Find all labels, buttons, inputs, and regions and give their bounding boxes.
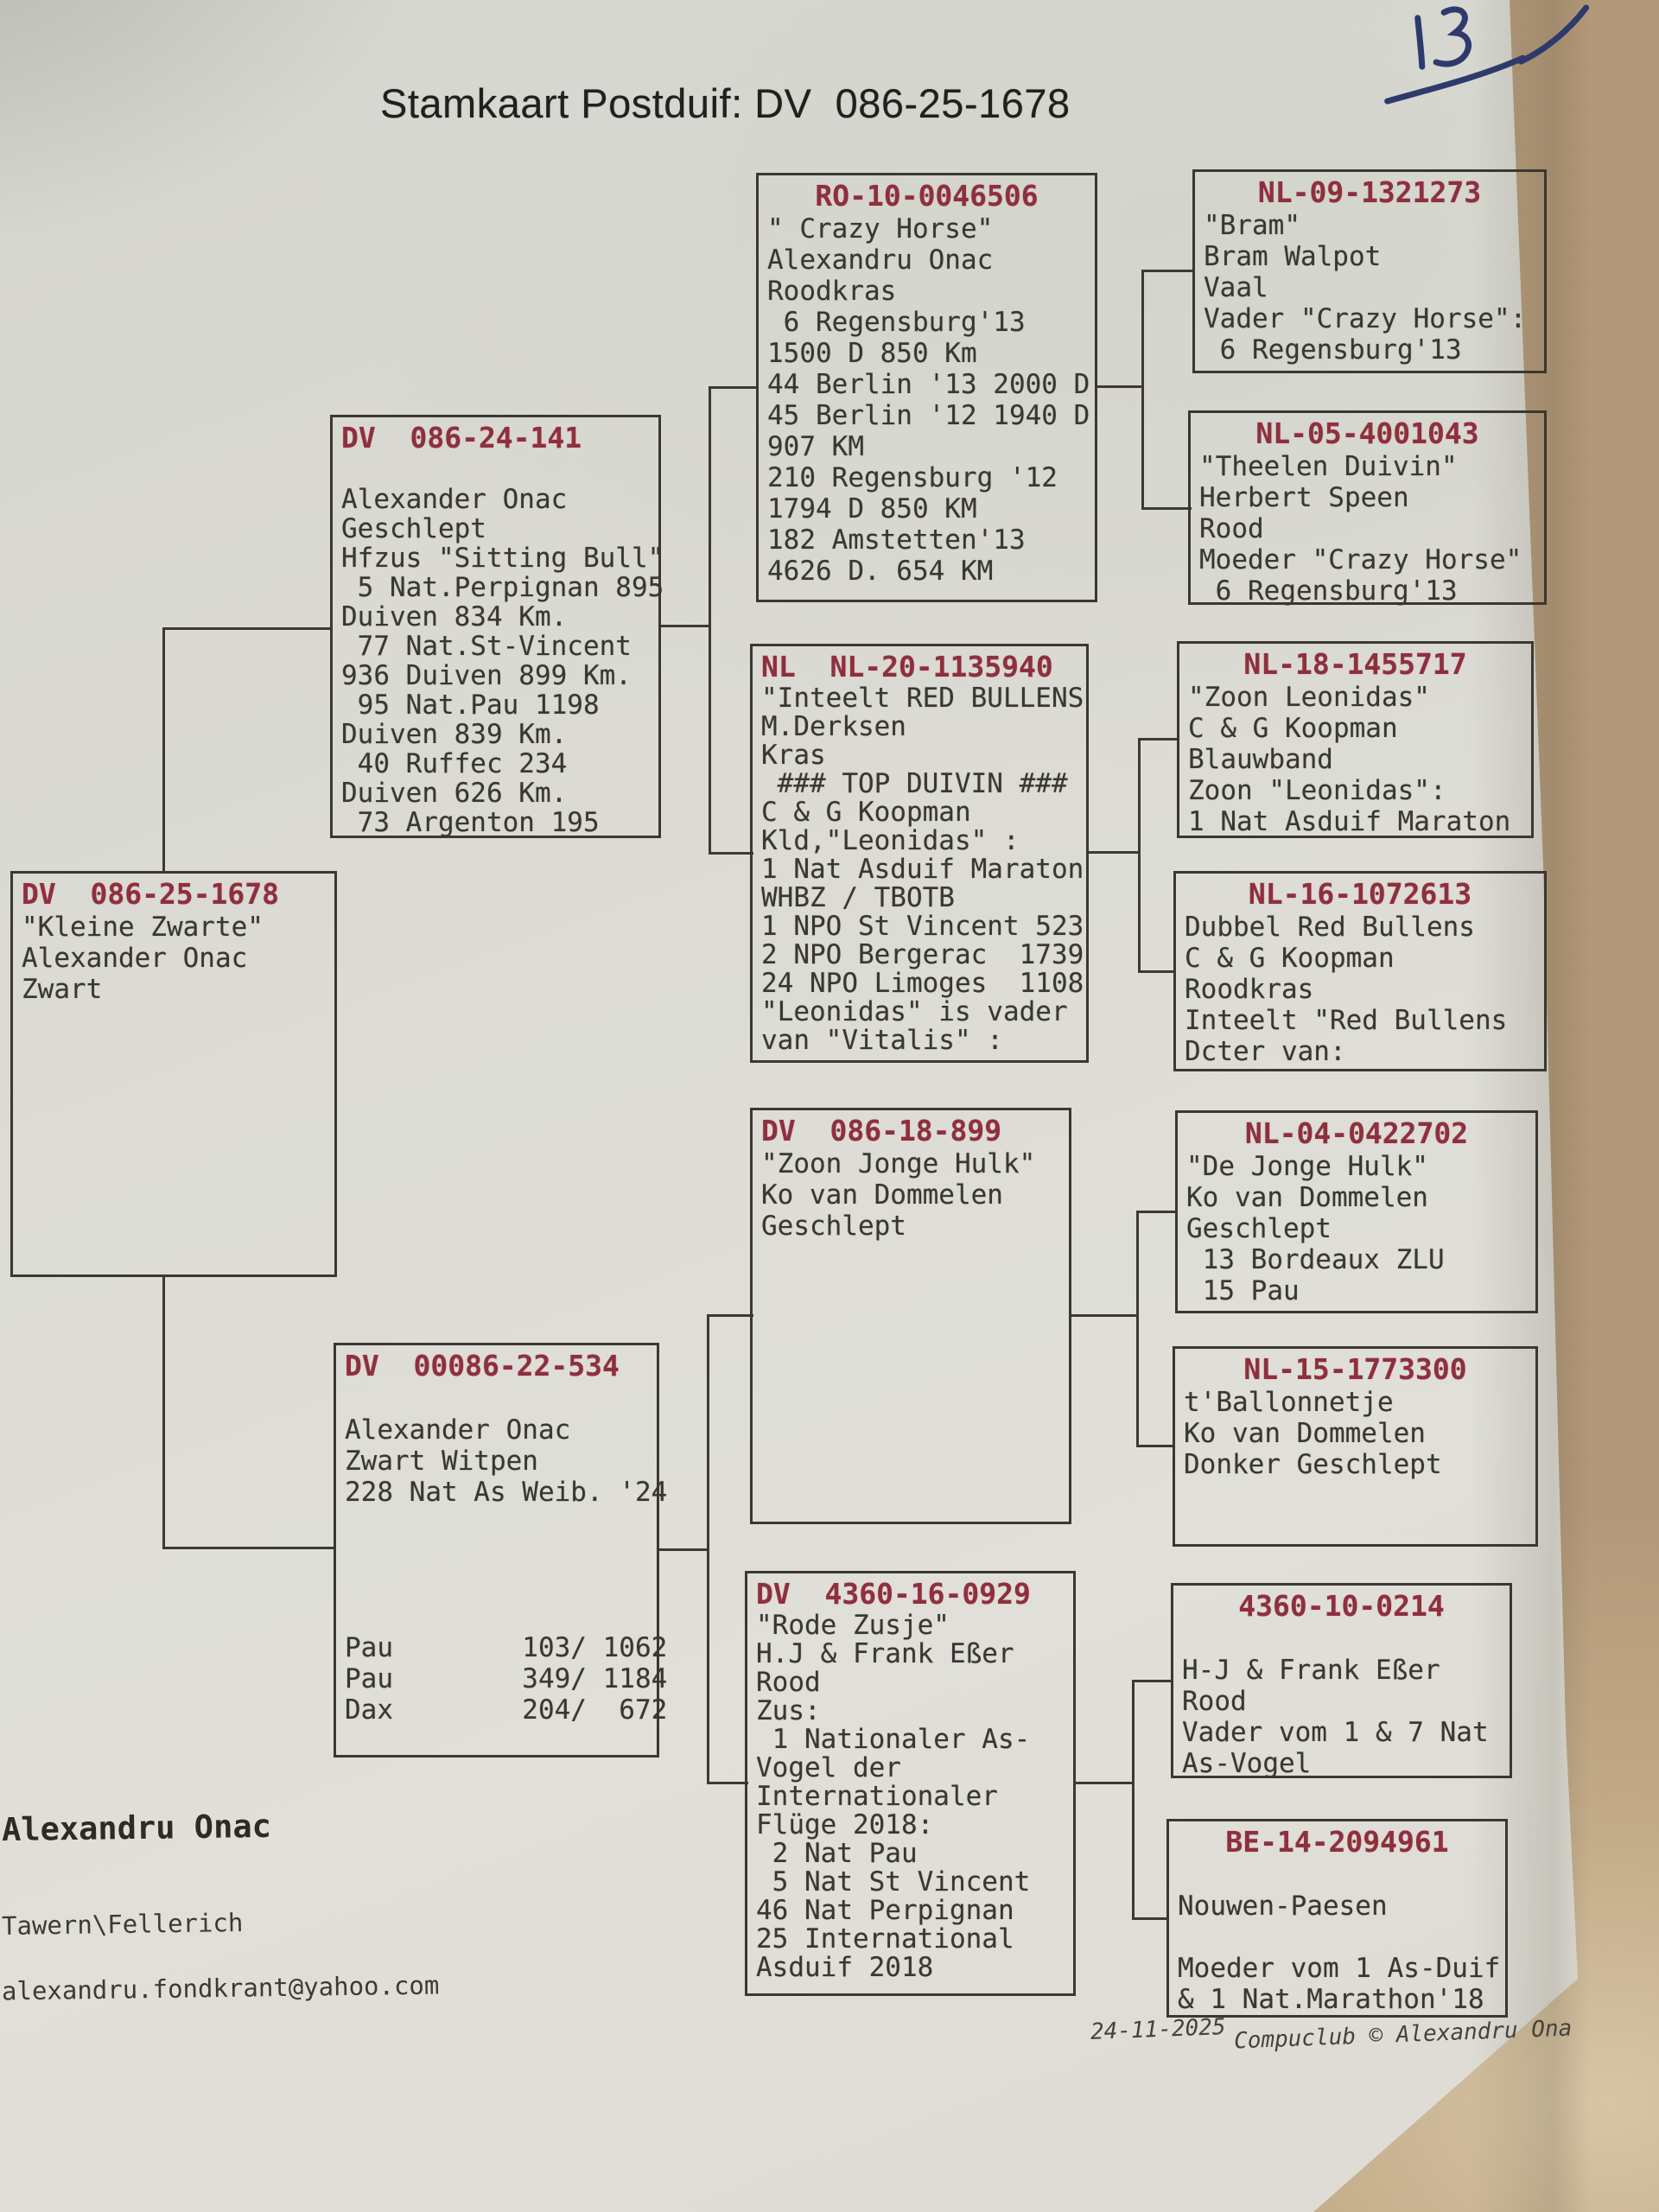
page-title: Stamkaart Postduif: DV 086-25-1678 [380, 79, 1071, 127]
ring-number: NL-04-0422702 [1186, 1116, 1532, 1151]
ring-number: DV 086-24-141 [341, 421, 655, 455]
connector-line [1141, 270, 1195, 272]
ring-number: NL-18-1455717 [1188, 647, 1528, 682]
ring-number: DV 4360-16-0929 [756, 1577, 1070, 1611]
handwritten-page-number [1362, 0, 1611, 140]
ring-number: NL NL-20-1135940 [761, 650, 1083, 684]
pigeon-details: "Zoon Leonidas" C & G Koopman Blauwband … [1188, 682, 1528, 837]
connector-line [1136, 1211, 1139, 1447]
pedigree-box-dv-086-24-141: DV 086-24-141 Alexander Onac Geschlept H… [330, 415, 661, 838]
pigeon-details: Dubbel Red Bullens C & G Koopman Roodkra… [1185, 912, 1541, 1067]
pedigree-box-dv-086-25-1678: DV 086-25-1678 "Kleine Zwarte" Alexander… [10, 871, 337, 1277]
owner-location: Tawern\Fellerich [2, 1908, 244, 1941]
ring-number: NL-09-1321273 [1204, 175, 1541, 210]
connector-line [162, 627, 332, 630]
connector-line [709, 852, 753, 855]
connector-line [1141, 270, 1144, 510]
connector-line [707, 1314, 753, 1317]
pedigree-box-nl-04-0422702: NL-04-0422702 "De Jonge Hulk" Ko van Dom… [1175, 1110, 1538, 1313]
connector-line [162, 627, 165, 873]
pigeon-details: Alexander Onac Geschlept Hfzus "Sitting … [341, 455, 655, 837]
connector-line [1070, 1314, 1139, 1317]
ink-strokes [1388, 0, 1586, 111]
pigeon-details: " Crazy Horse" Alexandru Onac Roodkras 6… [767, 213, 1091, 587]
pedigree-box-nl-18-1455717: NL-18-1455717 "Zoon Leonidas" C & G Koop… [1177, 641, 1534, 838]
connector-line [1132, 1680, 1135, 1920]
pedigree-box-nl-20-1135940: NL NL-20-1135940 "Inteelt RED BULLENS M.… [750, 644, 1089, 1063]
pedigree-box-nl-15-1773300: NL-15-1773300 t'Ballonnetje Ko van Domme… [1173, 1346, 1538, 1547]
connector-line [1136, 1445, 1175, 1447]
pedigree-box-nl-09-1321273: NL-09-1321273 "Bram" Bram Walpot Vaal Va… [1192, 169, 1547, 373]
connector-line [707, 1782, 748, 1784]
connector-line [1096, 385, 1144, 388]
pedigree-box-4360-10-0214: 4360-10-0214 H-J & Frank Eßer Rood Vader… [1171, 1583, 1512, 1778]
ring-number: DV 00086-22-534 [345, 1349, 653, 1383]
owner-email: alexandru.fondkrant@yahoo.com [2, 1970, 440, 2005]
connector-line [1087, 851, 1141, 854]
ring-number: DV 086-18-899 [761, 1114, 1065, 1148]
pigeon-details: "Zoon Jonge Hulk" Ko van Dommelen Geschl… [761, 1148, 1065, 1242]
connector-line [709, 386, 759, 389]
pigeon-details: "Theelen Duivin" Herbert Speen Rood Moed… [1199, 451, 1541, 607]
connector-line [1074, 1782, 1135, 1784]
pedigree-box-be-14-2094961: BE-14-2094961 Nouwen-Paesen Moeder vom 1… [1166, 1819, 1508, 2018]
connector-line [1132, 1917, 1169, 1920]
pigeon-details: Nouwen-Paesen Moeder vom 1 As-Duif & 1 N… [1178, 1859, 1502, 2015]
connector-line [1136, 1211, 1178, 1213]
connector-line [658, 1548, 709, 1551]
footer-date: 24-11-2025 [1090, 2014, 1226, 2045]
ring-number: NL-16-1072613 [1185, 877, 1541, 912]
pigeon-details: "Rode Zusje" H.J & Frank Eßer Rood Zus: … [756, 1611, 1070, 1982]
pedigree-box-dv-086-18-899: DV 086-18-899 "Zoon Jonge Hulk" Ko van D… [750, 1108, 1071, 1524]
pigeon-details: "Kleine Zwarte" Alexander Onac Zwart [22, 912, 331, 1005]
pigeon-details: Alexander Onac Zwart Witpen 228 Nat As W… [345, 1383, 653, 1726]
pedigree-box-dv-00086-22-534: DV 00086-22-534 Alexander Onac Zwart Wit… [334, 1343, 659, 1758]
connector-line [709, 386, 711, 855]
pigeon-details: "Bram" Bram Walpot Vaal Vader "Crazy Hor… [1204, 210, 1541, 365]
connector-line [1138, 738, 1141, 973]
ring-number: RO-10-0046506 [767, 179, 1091, 213]
pigeon-details: "Inteelt RED BULLENS M.Derksen Kras ### … [761, 684, 1083, 1055]
pedigree-box-nl-05-4001043: NL-05-4001043 "Theelen Duivin" Herbert S… [1188, 410, 1547, 605]
ring-number: NL-05-4001043 [1199, 416, 1541, 451]
pedigree-box-ro-10-0046506: RO-10-0046506 " Crazy Horse" Alexandru O… [756, 173, 1097, 602]
pedigree-box-nl-16-1072613: NL-16-1072613 Dubbel Red Bullens C & G K… [1173, 871, 1547, 1071]
connector-line [1138, 970, 1176, 973]
ring-number: 4360-10-0214 [1182, 1589, 1506, 1624]
pedigree-box-dv-4360-16-0929: DV 4360-16-0929 "Rode Zusje" H.J & Frank… [745, 1571, 1076, 1996]
pigeon-details: t'Ballonnetje Ko van Dommelen Donker Ges… [1184, 1387, 1532, 1480]
connector-line [1141, 507, 1192, 510]
ring-number: BE-14-2094961 [1178, 1825, 1502, 1859]
pigeon-details: H-J & Frank Eßer Rood Vader vom 1 & 7 Na… [1182, 1624, 1506, 1779]
connector-line [162, 1547, 335, 1549]
ring-number: DV 086-25-1678 [22, 877, 331, 912]
pigeon-details: "De Jonge Hulk" Ko van Dommelen Geschlep… [1186, 1151, 1532, 1306]
connector-line [659, 625, 711, 627]
connector-line [162, 1275, 165, 1548]
pedigree-card-photo: Stamkaart Postduif: DV 086-25-1678 DV 08… [0, 0, 1659, 2212]
connector-line [707, 1314, 709, 1784]
ring-number: NL-15-1773300 [1184, 1352, 1532, 1387]
owner-name: Alexandru Onac [2, 1808, 271, 1848]
connector-line [1138, 738, 1179, 741]
connector-line [1132, 1680, 1173, 1682]
